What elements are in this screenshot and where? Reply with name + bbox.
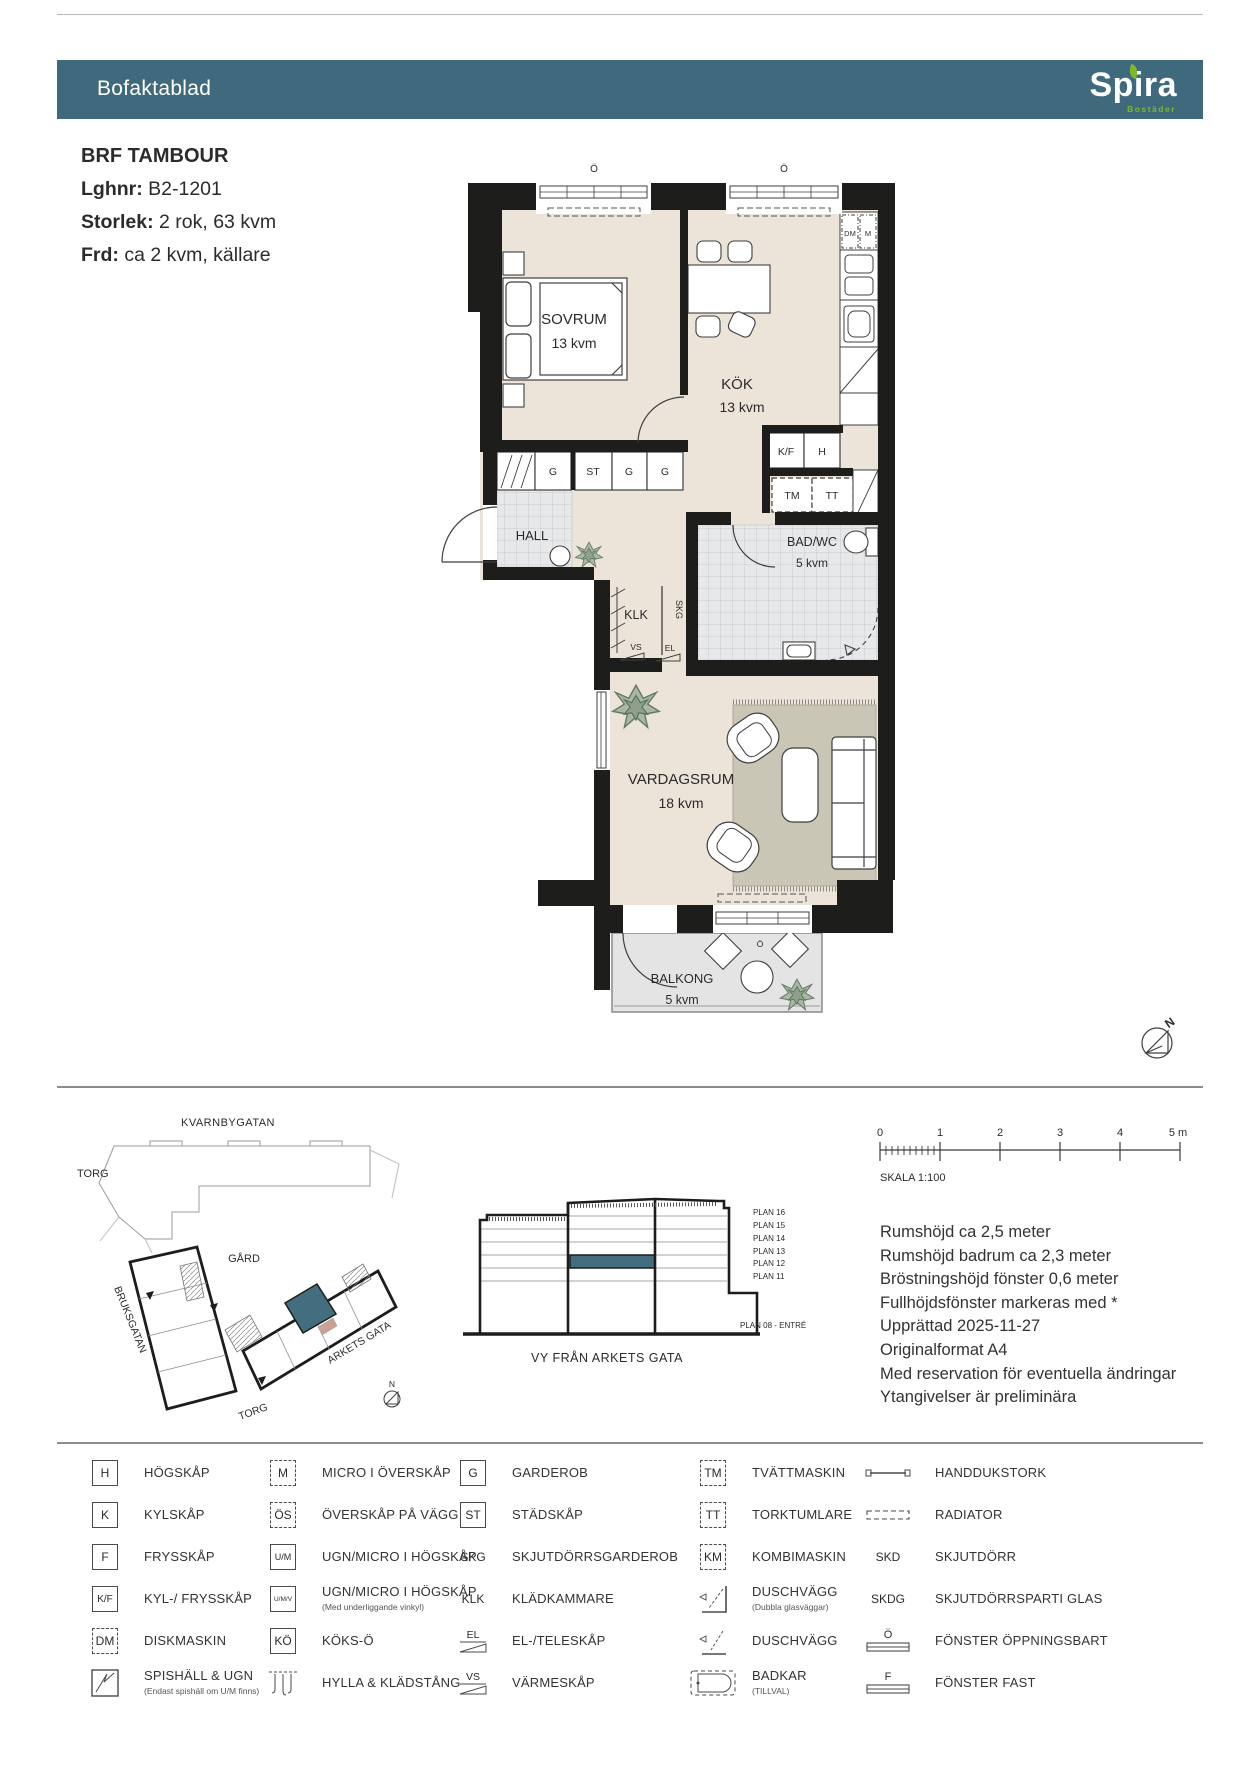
legend-item: GGARDEROB bbox=[448, 1452, 678, 1494]
spira-logo: Spira Bostäder bbox=[1051, 64, 1181, 116]
bathtub-icon bbox=[688, 1670, 738, 1696]
nightstand bbox=[503, 384, 524, 407]
project-name: BRF TAMBOUR bbox=[81, 140, 411, 173]
legend-col-4: TMTVÄTTMASKIN TTTORKTUMLARE KMKOMBIMASKI… bbox=[688, 1452, 852, 1704]
svg-text:5 kvm: 5 kvm bbox=[796, 556, 828, 570]
info-row: Frd: ca 2 kvm, källare bbox=[81, 239, 411, 272]
legend-item: F FÖNSTER FAST bbox=[855, 1662, 1108, 1704]
scale-label: SKALA 1:100 bbox=[880, 1172, 945, 1184]
svg-text:Ö: Ö bbox=[590, 163, 598, 175]
legend-col-3: GGARDEROB STSTÄDSKÅP SKGSKJUTDÖRRSGARDER… bbox=[448, 1452, 678, 1704]
svg-text:M: M bbox=[865, 229, 871, 238]
legend-item: STSTÄDSKÅP bbox=[448, 1494, 678, 1536]
info-row: Storlek: 2 rok, 63 kvm bbox=[81, 206, 411, 239]
bed bbox=[503, 278, 627, 380]
section-divider bbox=[57, 1086, 1203, 1088]
nightstand bbox=[503, 252, 524, 275]
legend-divider bbox=[57, 1442, 1203, 1444]
svg-text:VS: VS bbox=[630, 642, 642, 652]
coffee-table bbox=[782, 748, 818, 822]
shower-wall-icon bbox=[688, 1584, 738, 1614]
scale-bar: 0 1 2 3 4 5 m SKALA 1:100 bbox=[855, 1110, 1205, 1190]
radiator-icon bbox=[855, 1509, 921, 1521]
svg-text:2: 2 bbox=[997, 1127, 1003, 1139]
note-line: Upprättad 2025-11-27 bbox=[880, 1315, 1210, 1339]
svg-text:TORG: TORG bbox=[237, 1401, 269, 1423]
legend-item: TTTORKTUMLARE bbox=[688, 1494, 852, 1536]
svg-text:18 kvm: 18 kvm bbox=[658, 795, 703, 811]
stove-icon bbox=[80, 1669, 130, 1697]
window-kok bbox=[726, 176, 842, 216]
pendant-lamp bbox=[550, 546, 570, 566]
svg-text:PLAN 16: PLAN 16 bbox=[753, 1208, 786, 1217]
svg-text:0: 0 bbox=[877, 1127, 883, 1139]
info-row: Lghnr: B2-1201 bbox=[81, 173, 411, 206]
legend-item: HYLLA & KLÄDSTÅNG bbox=[258, 1662, 477, 1704]
svg-text:VARDAGSRUM: VARDAGSRUM bbox=[628, 771, 734, 788]
compass-north-label: N bbox=[1162, 1015, 1177, 1031]
legend-item: BADKAR(TILLVAL) bbox=[688, 1662, 852, 1704]
svg-text:SKG: SKG bbox=[674, 600, 684, 619]
legend-item: DUSCHVÄGG(Dubbla glasväggar) bbox=[688, 1578, 852, 1620]
note-line: Bröstningshöjd fönster 0,6 meter bbox=[880, 1268, 1210, 1292]
legend-item: SKDSKJUTDÖRR bbox=[855, 1536, 1108, 1578]
site-buildings bbox=[99, 1141, 399, 1409]
legend-item: VS VÄRMESKÅP bbox=[448, 1662, 678, 1704]
legend-item: Ö FÖNSTER ÖPPNINGSBART bbox=[855, 1620, 1108, 1662]
svg-text:BALKONG: BALKONG bbox=[651, 971, 714, 986]
scale-ticks bbox=[880, 1142, 1180, 1161]
floor-labels: PLAN 16 PLAN 15 PLAN 14 PLAN 13 PLAN 12 … bbox=[740, 1208, 806, 1330]
svg-text:5 m: 5 m bbox=[1169, 1127, 1187, 1139]
svg-text:G: G bbox=[661, 466, 669, 478]
svg-text:TORG: TORG bbox=[77, 1168, 109, 1180]
legend-col-5: HANDDUKSTORK RADIATOR SKDSKJUTDÖRR SKDGS… bbox=[855, 1452, 1108, 1704]
legend-col-2: MMICRO I ÖVERSKÅP ÖSÖVERSKÅP PÅ VÄGG U/M… bbox=[258, 1452, 477, 1704]
shelf-rail-icon bbox=[258, 1669, 308, 1697]
legend-item: EL EL-/TELESKÅP bbox=[448, 1620, 678, 1662]
legend-item: KÖKÖKS-Ö bbox=[258, 1620, 477, 1662]
svg-text:DM: DM bbox=[844, 229, 856, 238]
shower-wall-icon bbox=[688, 1626, 738, 1656]
svg-text:KLK: KLK bbox=[624, 608, 648, 622]
legend-item: KKYLSKÅP bbox=[80, 1494, 259, 1536]
compass-icon bbox=[1142, 1028, 1172, 1058]
legend-item: HHÖGSKÅP bbox=[80, 1452, 259, 1494]
svg-text:PLAN 15: PLAN 15 bbox=[753, 1221, 786, 1230]
vs-cabinet-icon: VS bbox=[448, 1671, 498, 1695]
legend-item: K/FKYL-/ FRYSSKÅP bbox=[80, 1578, 259, 1620]
svg-text:Ö: Ö bbox=[780, 163, 788, 175]
legend-item: RADIATOR bbox=[855, 1494, 1108, 1536]
svg-text:3: 3 bbox=[1057, 1127, 1063, 1139]
kitchen-counter bbox=[840, 212, 878, 425]
svg-text:TT: TT bbox=[826, 490, 839, 502]
svg-text:13 kvm: 13 kvm bbox=[551, 335, 596, 351]
site-compass-icon bbox=[384, 1391, 400, 1407]
site-compass-north: N bbox=[389, 1379, 395, 1389]
page-title: Bofaktablad bbox=[97, 77, 211, 101]
fixed-window-icon: F bbox=[855, 1671, 921, 1695]
legend-item: KMKOMBIMASKIN bbox=[688, 1536, 852, 1578]
notes-block: Rumshöjd ca 2,5 meter Rumshöjd badrum ca… bbox=[880, 1221, 1210, 1410]
window-sovrum bbox=[536, 176, 651, 216]
legend-item: SKDGSKJUTDÖRRSPARTI GLAS bbox=[855, 1578, 1108, 1620]
elevation-caption: VY FRÅN ARKETS GATA bbox=[531, 1350, 683, 1365]
brand-subtitle: Bostäder bbox=[1127, 104, 1176, 114]
svg-text:5 kvm: 5 kvm bbox=[665, 993, 698, 1007]
svg-text:KÖK: KÖK bbox=[721, 375, 753, 393]
openable-window-icon: Ö bbox=[855, 1629, 921, 1653]
legend-item: HANDDUKSTORK bbox=[855, 1452, 1108, 1494]
note-line: Fullhöjdsfönster markeras med * bbox=[880, 1292, 1210, 1316]
svg-text:PLAN 14: PLAN 14 bbox=[753, 1234, 786, 1243]
elevation-drawing bbox=[463, 1199, 760, 1334]
elevation-view: PLAN 16 PLAN 15 PLAN 14 PLAN 13 PLAN 12 … bbox=[450, 1185, 820, 1370]
top-rule bbox=[57, 14, 1203, 15]
legend-item: FFRYSSKÅP bbox=[80, 1536, 259, 1578]
window-vardagsrum-side bbox=[594, 690, 610, 770]
balcony-door-opening bbox=[623, 905, 677, 933]
legend-item: TMTVÄTTMASKIN bbox=[688, 1452, 852, 1494]
floor-plan: SOVRUM 13 kvm KÖK 13 kvm HALL KLK BAD/WC… bbox=[430, 140, 1190, 1070]
legend-item: U/MUGN/MICRO I HÖGSKÅP bbox=[258, 1536, 477, 1578]
note-line: Rumshöjd badrum ca 2,3 meter bbox=[880, 1245, 1210, 1269]
svg-text:PLAN 11: PLAN 11 bbox=[753, 1272, 785, 1281]
svg-text:ST: ST bbox=[586, 466, 600, 478]
svg-text:TM: TM bbox=[784, 490, 799, 502]
svg-text:SOVRUM: SOVRUM bbox=[541, 311, 607, 328]
legend-item: MMICRO I ÖVERSKÅP bbox=[258, 1452, 477, 1494]
svg-text:G: G bbox=[549, 466, 557, 478]
legend-item: SKGSKJUTDÖRRSGARDEROB bbox=[448, 1536, 678, 1578]
legend-item: DUSCHVÄGG bbox=[688, 1620, 852, 1662]
svg-text:KVARNBYGATAN: KVARNBYGATAN bbox=[181, 1117, 275, 1129]
bofaktablad-page: { "header": {"title": "Bofaktablad", "br… bbox=[0, 0, 1259, 1780]
header-bar: Bofaktablad Spira Bostäder bbox=[57, 60, 1203, 119]
legend-item: U/M/V UGN/MICRO I HÖGSKÅP(Med underligga… bbox=[258, 1578, 477, 1620]
sofa bbox=[832, 737, 876, 869]
note-line: Ytangivelser är preliminära bbox=[880, 1386, 1210, 1410]
note-line: Rumshöjd ca 2,5 meter bbox=[880, 1221, 1210, 1245]
svg-text:1: 1 bbox=[937, 1127, 943, 1139]
svg-text:13 kvm: 13 kvm bbox=[719, 399, 764, 415]
svg-text:G: G bbox=[625, 466, 633, 478]
scale-numbers: 0 1 2 3 4 5 m bbox=[877, 1127, 1187, 1139]
legend-item: SPISHÄLL & UGN(Endast spishäll om U/M fi… bbox=[80, 1662, 259, 1704]
note-line: Med reservation för eventuella ändringar bbox=[880, 1363, 1210, 1387]
svg-text:BAD/WC: BAD/WC bbox=[787, 535, 837, 549]
svg-text:Ö: Ö bbox=[757, 939, 764, 949]
svg-text:PLAN 13: PLAN 13 bbox=[753, 1247, 786, 1256]
towel-rail-icon bbox=[855, 1467, 921, 1479]
svg-text:EL: EL bbox=[665, 643, 676, 653]
entry-opening bbox=[483, 505, 497, 560]
el-cabinet-icon: EL bbox=[448, 1629, 498, 1653]
note-line: Originalformat A4 bbox=[880, 1339, 1210, 1363]
svg-text:4: 4 bbox=[1117, 1127, 1123, 1139]
svg-text:GÅRD: GÅRD bbox=[228, 1252, 260, 1265]
legend-item: DMDISKMASKIN bbox=[80, 1620, 259, 1662]
svg-text:HALL: HALL bbox=[516, 528, 549, 543]
legend-item: KLKKLÄDKAMMARE bbox=[448, 1578, 678, 1620]
entry-floor-label: PLAN 08 - ENTRÉ bbox=[740, 1321, 806, 1330]
toilet-bowl bbox=[844, 531, 868, 553]
apartment-info: BRF TAMBOUR Lghnr: B2-1201 Storlek: 2 ro… bbox=[81, 140, 411, 272]
legend-item: ÖSÖVERSKÅP PÅ VÄGG bbox=[258, 1494, 477, 1536]
site-plan: KVARNBYGATAN TORG GÅRD BRUKSGATAN ARKETS… bbox=[55, 1100, 415, 1435]
legend-col-1: HHÖGSKÅP KKYLSKÅP FFRYSSKÅP K/FKYL-/ FRY… bbox=[80, 1452, 259, 1704]
highlighted-floor bbox=[570, 1255, 655, 1268]
svg-text:PLAN 12: PLAN 12 bbox=[753, 1259, 786, 1268]
svg-text:H: H bbox=[818, 446, 826, 458]
svg-text:K/F: K/F bbox=[778, 446, 794, 458]
